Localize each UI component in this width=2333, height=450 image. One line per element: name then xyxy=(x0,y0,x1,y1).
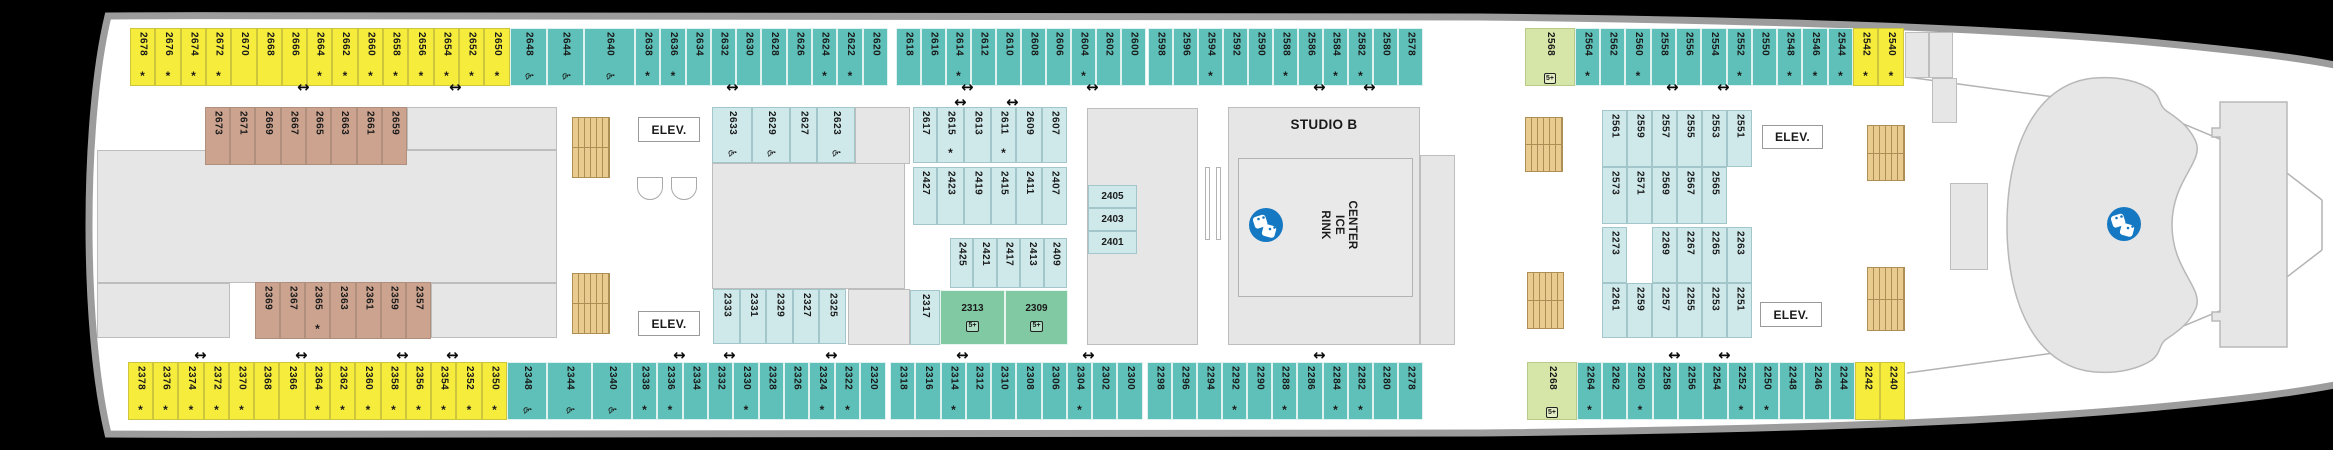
connecting-door-arrow: ↔ xyxy=(954,95,967,110)
connecting-door-arrow: ↔ xyxy=(1082,348,1095,363)
entertainment-masks-icon xyxy=(2107,207,2141,241)
connecting-door-arrow: ↔ xyxy=(297,80,310,95)
connecting-doors-layer: ↔↔↔↔↔↔↔↔↔↔↔↔↔↔↔↔↔↔↔↔↔↔↔ xyxy=(0,0,2333,450)
entertainment-icon xyxy=(1249,208,1283,242)
connecting-door-arrow: ↔ xyxy=(446,348,459,363)
connecting-door-arrow: ↔ xyxy=(1717,80,1730,95)
entertainment-icon xyxy=(2107,207,2141,241)
deck-plan: ELEV.ELEV.ELEV.ELEV. 2678*2676*2674*2672… xyxy=(0,0,2333,450)
connecting-door-arrow: ↔ xyxy=(1363,80,1376,95)
connecting-door-arrow: ↔ xyxy=(1313,348,1326,363)
connecting-door-arrow: ↔ xyxy=(673,348,686,363)
connecting-door-arrow: ↔ xyxy=(396,348,409,363)
connecting-door-arrow: ↔ xyxy=(1666,80,1679,95)
connecting-door-arrow: ↔ xyxy=(449,80,462,95)
entertainment-masks-icon xyxy=(1249,208,1283,242)
center-ice-rink-label: CENTER ICE RINK xyxy=(1285,175,1391,275)
studio-b-label: STUDIO B xyxy=(1244,117,1404,132)
connecting-door-arrow: ↔ xyxy=(956,348,969,363)
connecting-door-arrow: ↔ xyxy=(295,348,308,363)
connecting-door-arrow: ↔ xyxy=(1006,95,1019,110)
connecting-door-arrow: ↔ xyxy=(825,348,838,363)
connecting-door-arrow: ↔ xyxy=(1668,348,1681,363)
connecting-door-arrow: ↔ xyxy=(726,80,739,95)
connecting-door-arrow: ↔ xyxy=(723,348,736,363)
connecting-door-arrow: ↔ xyxy=(1313,80,1326,95)
connecting-door-arrow: ↔ xyxy=(1718,348,1731,363)
connecting-door-arrow: ↔ xyxy=(194,348,207,363)
connecting-door-arrow: ↔ xyxy=(1086,80,1099,95)
